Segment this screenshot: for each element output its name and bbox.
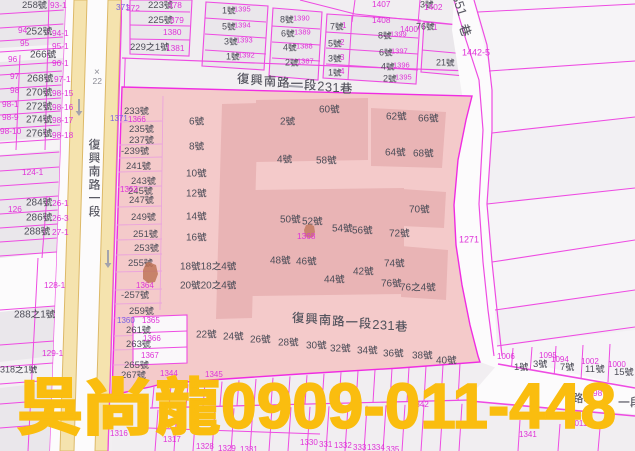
svg-text:1366: 1366 (143, 334, 161, 343)
svg-text:288: 288 (14, 310, 31, 321)
svg-text:70: 70 (409, 205, 421, 216)
svg-text:1: 1 (155, 42, 160, 53)
svg-text:1390: 1390 (293, 13, 310, 22)
svg-text:16: 16 (186, 233, 198, 244)
svg-text:1388: 1388 (296, 41, 313, 50)
svg-text:34: 34 (357, 346, 369, 357)
svg-text:288: 288 (24, 227, 41, 238)
svg-text:335: 335 (386, 445, 400, 451)
svg-text:6: 6 (189, 117, 195, 128)
svg-text:237: 237 (129, 135, 145, 146)
svg-text:76: 76 (400, 283, 412, 294)
svg-text:72: 72 (389, 229, 401, 240)
svg-text:3: 3 (533, 359, 538, 370)
svg-text:4: 4 (277, 155, 283, 166)
svg-text:129-1: 129-1 (42, 348, 64, 358)
svg-text:1: 1 (226, 52, 231, 62)
svg-text:1367: 1367 (141, 351, 159, 360)
svg-text:26: 26 (250, 335, 262, 346)
svg-text:95: 95 (20, 38, 30, 48)
svg-text:-257: -257 (121, 290, 140, 301)
svg-text:98-1: 98-1 (2, 99, 19, 109)
svg-text:1328: 1328 (196, 442, 214, 451)
svg-text:94-1: 94-1 (52, 28, 69, 38)
svg-text:4: 4 (221, 281, 227, 292)
svg-text:2: 2 (317, 79, 324, 94)
svg-text:1332: 1332 (334, 441, 352, 450)
svg-text:-239: -239 (121, 146, 140, 157)
svg-text:93-1: 93-1 (50, 0, 67, 10)
svg-text:8: 8 (189, 142, 195, 153)
svg-text:276: 276 (26, 129, 43, 140)
svg-text:97-1: 97-1 (54, 74, 71, 84)
svg-text:36: 36 (383, 349, 395, 360)
svg-text:1389: 1389 (294, 27, 311, 36)
svg-text:263: 263 (126, 339, 142, 350)
svg-text:46: 46 (296, 257, 308, 268)
svg-text:10: 10 (186, 169, 198, 180)
svg-text:98-16: 98-16 (52, 102, 74, 112)
svg-text:26-1: 26-1 (52, 198, 69, 208)
svg-text:22: 22 (196, 330, 208, 341)
svg-text:50: 50 (280, 215, 292, 226)
svg-text:1380: 1380 (163, 27, 182, 37)
svg-text:4: 4 (340, 67, 345, 76)
svg-text:12: 12 (186, 189, 198, 200)
svg-text:1402: 1402 (424, 2, 443, 12)
svg-text:241: 241 (126, 161, 142, 172)
svg-text:22: 22 (93, 76, 103, 86)
svg-text:255: 255 (128, 258, 144, 269)
svg-text:2: 2 (280, 117, 286, 128)
svg-text:1316: 1316 (110, 429, 128, 438)
svg-text:7: 7 (330, 22, 335, 32)
svg-text:1408: 1408 (372, 15, 391, 25)
svg-text:1442-5: 1442-5 (462, 48, 490, 58)
svg-text:1: 1 (332, 80, 339, 95)
svg-text:333: 333 (353, 443, 367, 451)
svg-text:124-1: 124-1 (22, 167, 44, 177)
svg-text:1394: 1394 (234, 20, 251, 29)
svg-text:6: 6 (379, 48, 384, 58)
svg-text:95-1: 95-1 (52, 41, 69, 51)
svg-text:272: 272 (26, 102, 43, 113)
svg-text:5: 5 (328, 39, 333, 49)
svg-text:24: 24 (223, 332, 235, 343)
svg-text:1: 1 (328, 68, 333, 78)
svg-text:30: 30 (306, 341, 318, 352)
svg-text:372: 372 (126, 3, 140, 13)
svg-text:1396: 1396 (393, 60, 410, 69)
svg-text:38: 38 (412, 351, 424, 362)
svg-text:40: 40 (436, 356, 448, 367)
svg-text:4: 4 (421, 283, 427, 294)
svg-text:96: 96 (8, 54, 18, 64)
svg-text:1407: 1407 (372, 0, 391, 9)
svg-text:1: 1 (40, 310, 46, 321)
svg-text:1: 1 (24, 365, 29, 375)
svg-text:229: 229 (130, 42, 146, 53)
svg-text:274: 274 (26, 115, 43, 126)
svg-text:58: 58 (316, 156, 328, 167)
svg-text:18: 18 (201, 262, 213, 273)
svg-text:98-15: 98-15 (52, 88, 74, 98)
svg-text:3: 3 (340, 53, 345, 62)
svg-text:378: 378 (168, 0, 182, 10)
svg-text:27-1: 27-1 (52, 227, 69, 237)
svg-text:1: 1 (342, 21, 347, 30)
svg-text:2: 2 (340, 38, 345, 47)
svg-text:0909-011-448: 0909-011-448 (221, 370, 616, 442)
svg-text:1006: 1006 (497, 352, 515, 361)
svg-text:54: 54 (332, 224, 344, 235)
svg-text:32: 32 (330, 344, 342, 355)
svg-text:253: 253 (134, 243, 150, 254)
svg-text:379: 379 (170, 15, 184, 25)
svg-text:318: 318 (0, 365, 15, 375)
svg-text:1393: 1393 (236, 35, 253, 44)
svg-text:2: 2 (372, 317, 379, 332)
svg-text:56: 56 (352, 226, 364, 237)
svg-text:270: 270 (26, 88, 43, 99)
svg-text:96-1: 96-1 (52, 58, 69, 68)
svg-text:1395: 1395 (395, 72, 412, 81)
svg-text:258: 258 (22, 0, 38, 11)
svg-text:1381: 1381 (166, 43, 185, 53)
svg-text:261: 261 (126, 325, 142, 336)
svg-text:233: 233 (124, 106, 140, 117)
svg-text:4: 4 (381, 62, 386, 72)
svg-text:1: 1 (222, 6, 227, 16)
svg-text:251: 251 (133, 229, 149, 240)
svg-text:62: 62 (386, 112, 398, 123)
svg-text:4: 4 (221, 262, 227, 273)
svg-text:5: 5 (222, 22, 227, 32)
svg-text:3: 3 (328, 54, 333, 64)
svg-text:98-10: 98-10 (0, 126, 22, 136)
svg-text:1: 1 (433, 23, 438, 32)
svg-text:98-9: 98-9 (2, 112, 19, 122)
svg-text:76: 76 (381, 279, 393, 290)
svg-text:126: 126 (8, 204, 22, 214)
svg-text:286: 286 (26, 213, 43, 224)
svg-text:68: 68 (413, 149, 425, 160)
svg-text:2: 2 (383, 74, 388, 84)
svg-text:1397: 1397 (391, 46, 408, 55)
svg-text:235: 235 (129, 124, 145, 135)
svg-text:98: 98 (10, 85, 20, 95)
svg-text:28: 28 (278, 338, 290, 349)
svg-text:20: 20 (180, 281, 192, 292)
svg-text:1334: 1334 (367, 443, 385, 451)
svg-text:48: 48 (270, 256, 282, 267)
svg-text:3: 3 (224, 37, 229, 47)
svg-text:44: 44 (324, 275, 336, 286)
svg-text:3: 3 (380, 318, 387, 333)
svg-text:18: 18 (180, 262, 192, 273)
svg-text:1387: 1387 (297, 56, 314, 65)
svg-text:2: 2 (285, 58, 290, 68)
svg-text:98-18: 98-18 (52, 130, 74, 140)
svg-text:1317: 1317 (163, 435, 181, 444)
svg-text:1: 1 (387, 318, 394, 333)
svg-text:266: 266 (30, 50, 47, 61)
svg-text:1365: 1365 (142, 316, 160, 325)
svg-text:128-1: 128-1 (44, 280, 66, 290)
svg-text:1395: 1395 (234, 4, 251, 13)
svg-text:1360: 1360 (117, 316, 135, 325)
svg-text:20: 20 (201, 281, 213, 292)
svg-text:247: 247 (129, 195, 145, 206)
svg-text:1400: 1400 (400, 25, 418, 34)
svg-text:8: 8 (378, 31, 383, 41)
svg-text:225: 225 (148, 15, 164, 26)
svg-text:1392: 1392 (238, 50, 255, 59)
svg-text:97: 97 (10, 71, 20, 81)
svg-text:3: 3 (325, 79, 332, 94)
svg-text:249: 249 (131, 212, 147, 223)
svg-text:1363: 1363 (120, 185, 138, 194)
svg-text:21: 21 (436, 58, 446, 68)
svg-text:74: 74 (384, 259, 396, 270)
svg-text:268: 268 (27, 74, 44, 85)
svg-text:223: 223 (148, 0, 164, 11)
svg-text:66: 66 (418, 114, 430, 125)
svg-text:1329: 1329 (218, 444, 236, 451)
svg-text:64: 64 (385, 148, 397, 159)
svg-text:60: 60 (319, 105, 331, 116)
svg-text:1368: 1368 (297, 231, 316, 241)
svg-text:284: 284 (26, 198, 43, 209)
svg-text:4: 4 (283, 43, 288, 53)
svg-text:14: 14 (186, 212, 198, 223)
svg-text:98-17: 98-17 (52, 115, 74, 125)
svg-text:6: 6 (281, 29, 286, 39)
svg-text:8: 8 (280, 15, 285, 25)
svg-text:1271: 1271 (459, 235, 479, 245)
svg-text:42: 42 (353, 267, 365, 278)
svg-text:1331: 1331 (240, 445, 258, 451)
svg-text:26-3: 26-3 (52, 213, 69, 223)
svg-text:252: 252 (26, 27, 43, 38)
